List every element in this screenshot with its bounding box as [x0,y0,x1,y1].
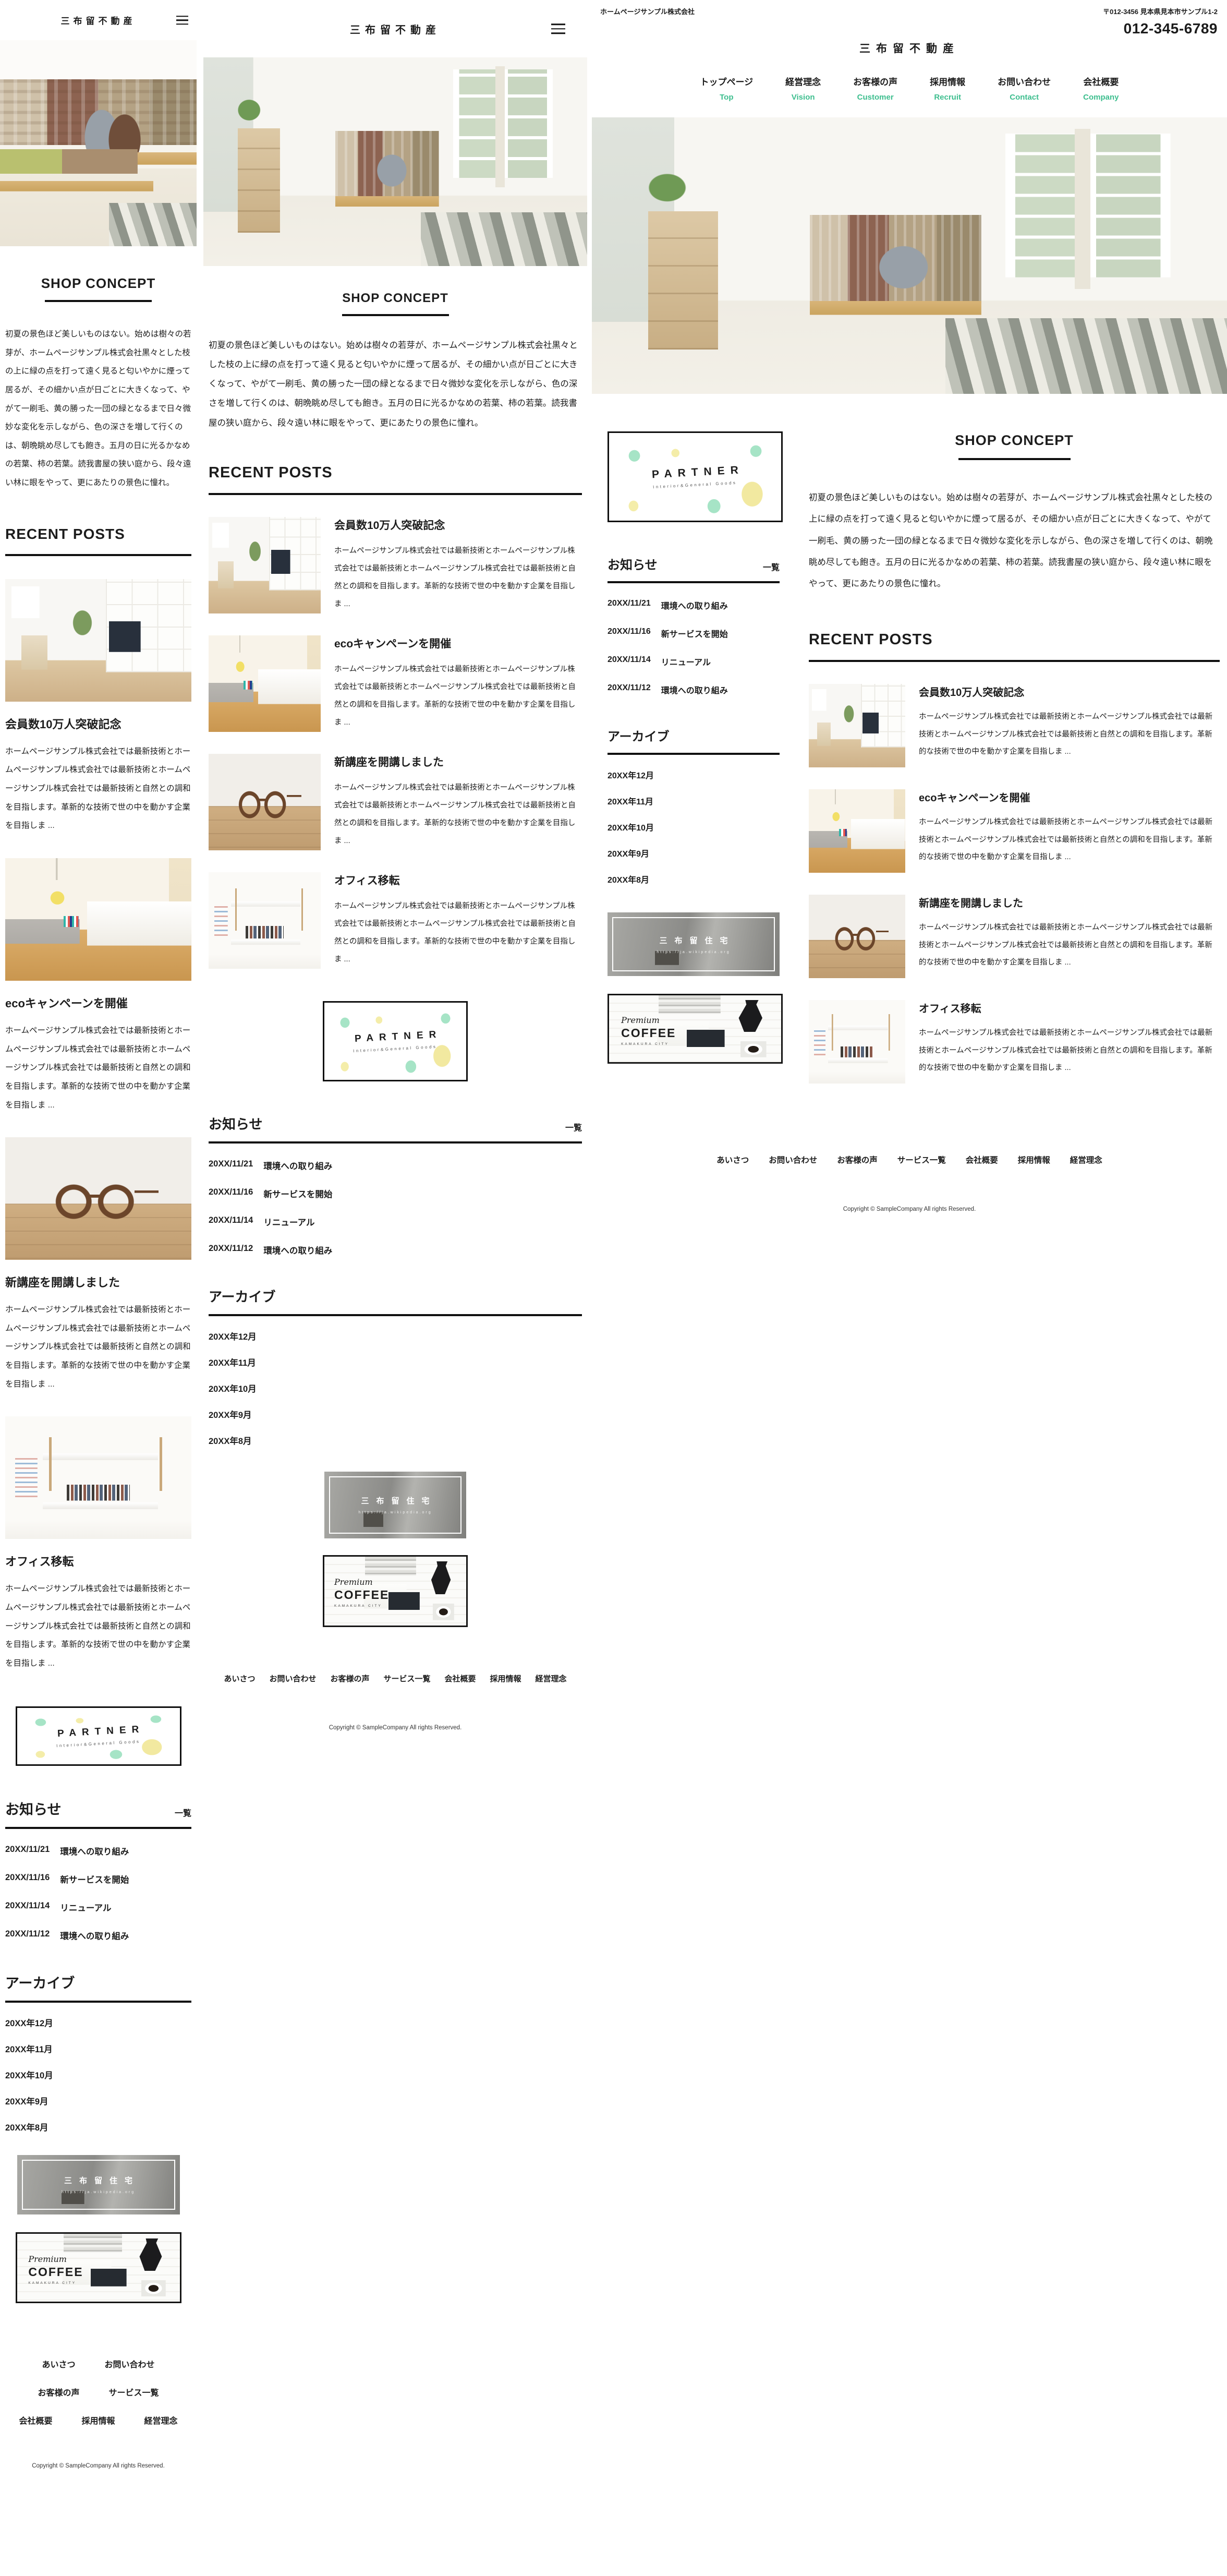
post-thumbnail[interactable] [209,754,321,850]
post-card: 新講座を開講しました ホームページサンプル株式会社では最新技術とホームページサン… [809,895,1220,978]
post-title[interactable]: 会員数10万人突破記念 [919,684,1220,699]
shop-concept-title: SHOP CONCEPT [809,432,1220,449]
archive-item[interactable]: 20XX年10月 [5,2068,191,2081]
post-thumbnail[interactable] [809,789,905,873]
footer-nav: あいさつ お問い合わせ お客様の声 サービス一覧 会社概要 採用情報 経営理念 [592,1154,1227,1165]
site-logo[interactable]: 三布留不動産 [61,14,136,27]
post-excerpt: ホームページサンプル株式会社では最新技術とホームページサンプル株式会社では最新技… [334,779,582,850]
news-list-link[interactable]: 一覧 [175,1806,191,1819]
footer-link[interactable]: お問い合わせ [105,2357,155,2370]
news-title: お知らせ [608,555,658,573]
news-item[interactable]: 20XX/11/16新サービスを開始 [5,1873,191,1885]
phone-number: 012-345-6789 [1103,20,1218,37]
news-text: 環境への取り組み [661,683,728,696]
coffee-banner-pre: Premium [621,1015,676,1025]
archive-section: アーカイブ 20XX年12月 20XX年11月 20XX年10月 20XX年9月… [5,1972,191,2133]
coffee-banner-title: COFFEE [334,1588,389,1602]
post-title[interactable]: オフィス移転 [5,1552,191,1569]
post-excerpt: ホームページサンプル株式会社では最新技術とホームページサンプル株式会社では最新技… [919,919,1220,971]
archive-title: アーカイブ [209,1286,582,1306]
post-excerpt: ホームページサンプル株式会社では最新技術とホームページサンプル株式会社では最新技… [5,1021,191,1114]
partner-banner[interactable]: PARTNER Interior&General Goods [323,1001,468,1081]
news-item[interactable]: 20XX/11/16新サービスを開始 [209,1187,582,1200]
news-date: 20XX/11/21 [608,599,651,611]
post-title[interactable]: 会員数10万人突破記念 [334,517,582,533]
jutaku-banner-url: https://ja.wikipedia.org [358,1511,432,1514]
news-date: 20XX/11/14 [5,1901,50,1913]
company-address: 〒012-3456 見本県見本市サンプル1-2 [1103,8,1218,16]
archive-item[interactable]: 20XX年8月 [5,2121,191,2133]
archive-item[interactable]: 20XX年9月 [5,2094,191,2107]
divider [5,1827,191,1829]
main-nav: トップページTop 経営理念Vision お客様の声Customer 採用情報R… [592,75,1227,117]
hero-image [203,57,587,266]
jutaku-banner-title: 三布留住宅 [652,935,735,946]
news-text: 環境への取り組み [263,1159,332,1172]
hero-image [0,40,197,246]
post-thumbnail[interactable] [809,895,905,978]
jutaku-banner[interactable]: 三布留住宅 https://ja.wikipedia.org [324,1472,466,1538]
nav-item-customer[interactable]: お客様の声Customer [853,75,897,102]
coffee-banner-subtitle: KAMAKURA CITY [334,1604,389,1608]
archive-item[interactable]: 20XX年11月 [209,1356,582,1368]
footer-link[interactable]: 採用情報 [490,1673,521,1684]
jutaku-banner-title: 三布留住宅 [57,2175,140,2186]
partner-banner[interactable]: PARTNER Interior&General Goods [608,431,783,522]
news-list-link[interactable]: 一覧 [565,1121,582,1133]
nav-item-recruit[interactable]: 採用情報Recruit [930,75,965,102]
desktop-viewport: ホームページサンプル株式会社 〒012-3456 見本県見本市サンプル1-2 0… [592,0,1227,1241]
post-card: オフィス移転 ホームページサンプル株式会社では最新技術とホームページサンプル株式… [809,1000,1220,1084]
shop-concept-title: SHOP CONCEPT [209,291,582,306]
news-section: お知らせ 一覧 20XX/11/21環境への取り組み 20XX/11/16新サー… [608,555,780,696]
archive-item[interactable]: 20XX年9月 [608,847,780,859]
jutaku-banner[interactable]: 三布留住宅 https://ja.wikipedia.org [608,912,780,976]
post-title[interactable]: ecoキャンペーンを開催 [919,789,1220,804]
news-date: 20XX/11/14 [608,655,651,668]
shop-concept-text: 初夏の景色ほど美しいものはない。始めは樹々の若芽が、ホームページサンプル株式会社… [5,325,191,492]
news-item[interactable]: 20XX/11/12環境への取り組み [5,1929,191,1942]
divider [608,581,780,583]
desktop-content: PARTNER Interior&General Goods お知らせ 一覧 2… [592,394,1227,1084]
archive-section: アーカイブ 20XX年12月 20XX年11月 20XX年10月 20XX年9月… [608,726,780,885]
post-excerpt: ホームページサンプル株式会社では最新技術とホームページサンプル株式会社では最新技… [5,1301,191,1393]
news-item[interactable]: 20XX/11/14リニューアル [5,1901,191,1913]
partner-banner-title: PARTNER [348,1029,442,1045]
coffee-banner-title: COFFEE [621,1026,676,1040]
post-title[interactable]: 新講座を開講しました [5,1273,191,1290]
news-text: リニューアル [263,1215,314,1228]
footer-link[interactable]: お問い合わせ [269,1673,316,1684]
news-text: 環境への取り組み [60,1845,129,1857]
archive-item[interactable]: 20XX年10月 [608,821,780,833]
post-excerpt: ホームページサンプル株式会社では最新技術とホームページサンプル株式会社では最新技… [919,708,1220,761]
jutaku-banner[interactable]: 三布留住宅 https://ja.wikipedia.org [17,2155,180,2214]
news-text: 新サービスを開始 [60,1873,129,1885]
post-thumbnail[interactable] [5,1137,191,1260]
footer-nav: あいさつ お問い合わせ お客様の声 サービス一覧 会社概要 採用情報 経営理念 [209,1673,582,1684]
footer-link[interactable]: お客様の声 [837,1154,878,1165]
news-item[interactable]: 20XX/11/12環境への取り組み [608,683,780,696]
copyright: Copyright © SampleCompany All rights Res… [592,1206,1227,1212]
jutaku-banner-url: https://ja.wikipedia.org [62,2190,135,2194]
news-date: 20XX/11/16 [608,627,651,640]
footer-link[interactable]: お客様の声 [38,2386,79,2398]
footer-link[interactable]: サービス一覧 [897,1154,946,1165]
archive-title: アーカイブ [5,1972,191,1992]
post-thumbnail[interactable] [5,858,191,981]
archive-item[interactable]: 20XX年11月 [608,795,780,807]
news-section: お知らせ 一覧 20XX/11/21環境への取り組み 20XX/11/16新サー… [5,1798,191,1942]
footer-link[interactable]: お問い合わせ [769,1154,817,1165]
post-title[interactable]: ecoキャンペーンを開催 [334,635,582,651]
recent-posts-title: RECENT POSTS [809,631,1220,648]
archive-item[interactable]: 20XX年12月 [209,1330,582,1342]
news-date: 20XX/11/12 [209,1244,253,1256]
archive-item[interactable]: 20XX年12月 [5,2016,191,2029]
post-thumbnail[interactable] [209,872,321,969]
archive-item[interactable]: 20XX年11月 [5,2042,191,2055]
tablet-viewport: 三布留不動産 SHOP CONCEPT 初夏の景色ほど美しいものはない。始めは樹… [203,0,587,1760]
news-list-link[interactable]: 一覧 [763,560,780,573]
news-text: 環境への取り組み [263,1244,332,1256]
footer-nav: あいさつ お問い合わせ お客様の声 サービス一覧 会社概要 採用情報 経営理念 [5,2357,191,2426]
mobile-viewport: 三布留不動産 SHOP CONCEPT 初夏の景色ほど美しいものはない。始めは樹… [0,0,197,2495]
news-item[interactable]: 20XX/11/16新サービスを開始 [608,627,780,640]
post-thumbnail[interactable] [5,1416,191,1539]
news-title: お知らせ [209,1114,262,1133]
news-item[interactable]: 20XX/11/21環境への取り組み [209,1159,582,1172]
nav-item-contact[interactable]: お問い合わせContact [998,75,1051,102]
archive-item[interactable]: 20XX年10月 [209,1382,582,1394]
coffee-banner[interactable]: Premium COFFEE KAMAKURA CITY [608,994,783,1064]
news-item[interactable]: 20XX/11/21環境への取り組み [5,1845,191,1857]
footer-link[interactable]: サービス一覧 [109,2386,159,2398]
coffee-banner[interactable]: Premium COFFEE KAMAKURA CITY [323,1555,468,1627]
post-title[interactable]: 会員数10万人突破記念 [5,715,191,732]
partner-banner[interactable]: PARTNER Interior&General Goods [16,1706,181,1766]
site-logo[interactable]: 三布留不動産 [350,21,441,37]
post-excerpt: ホームページサンプル株式会社では最新技術とホームページサンプル株式会社では最新技… [334,660,582,731]
post-excerpt: ホームページサンプル株式会社では最新技術とホームページサンプル株式会社では最新技… [334,542,582,613]
post-thumbnail[interactable] [809,684,905,767]
post-card: 新講座を開講しました ホームページサンプル株式会社では最新技術とホームページサン… [209,754,582,850]
news-section: お知らせ 一覧 20XX/11/21環境への取り組み 20XX/11/16新サー… [209,1114,582,1256]
footer-link[interactable]: 採用情報 [81,2414,115,2426]
partner-banner-subtitle: Interior&General Goods [653,480,737,489]
post-thumbnail[interactable] [809,1000,905,1084]
footer-link[interactable]: お客様の声 [330,1673,369,1684]
divider [209,1314,582,1316]
footer-link[interactable]: 経営理念 [1070,1154,1102,1165]
post-thumbnail[interactable] [209,635,321,732]
archive-title: アーカイブ [608,726,780,744]
coffee-banner-subtitle: KAMAKURA CITY [28,2281,83,2285]
archive-item[interactable]: 20XX年9月 [209,1408,582,1421]
archive-section: アーカイブ 20XX年12月 20XX年11月 20XX年10月 20XX年9月… [209,1286,582,1447]
footer-link[interactable]: 会社概要 [19,2414,52,2426]
news-text: 新サービスを開始 [661,627,728,640]
post-excerpt: ホームページサンプル株式会社では最新技術とホームページサンプル株式会社では最新技… [334,897,582,968]
news-title: お知らせ [5,1798,61,1819]
partner-banner-subtitle: Interior&General Goods [56,1739,141,1748]
post-card: ecoキャンペーンを開催 ホームページサンプル株式会社では最新技術とホームページ… [5,858,191,1114]
footer-link[interactable]: サービス一覧 [383,1673,430,1684]
post-title[interactable]: 新講座を開講しました [334,754,582,769]
responsive-preview-canvas: 三布留不動産 SHOP CONCEPT 初夏の景色ほど美しいものはない。始めは樹… [0,0,1227,2576]
news-item[interactable]: 20XX/11/14リニューアル [608,655,780,668]
divider [608,753,780,755]
footer-link[interactable]: 会社概要 [966,1154,998,1165]
nav-item-vision[interactable]: 経営理念Vision [785,75,821,102]
news-date: 20XX/11/14 [209,1215,253,1228]
coffee-banner[interactable]: Premium COFFEE KAMAKURA CITY [16,2232,181,2303]
tablet-content: SHOP CONCEPT 初夏の景色ほど美しいものはない。始めは樹々の若芽が、ホ… [203,291,587,1731]
news-text: リニューアル [60,1901,111,1913]
post-excerpt: ホームページサンプル株式会社では最新技術とホームページサンプル株式会社では最新技… [919,1025,1220,1077]
shop-concept-title: SHOP CONCEPT [5,275,191,292]
archive-item[interactable]: 20XX年8月 [608,873,780,885]
news-text: リニューアル [661,655,711,668]
footer-link[interactable]: あいさつ [224,1673,255,1684]
news-text: 環境への取り組み [60,1929,129,1942]
post-card: オフィス移転 ホームページサンプル株式会社では最新技術とホームページサンプル株式… [209,872,582,969]
sidebar: PARTNER Interior&General Goods お知らせ 一覧 2… [608,431,780,1064]
site-logo[interactable]: 三布留不動産 [592,40,1227,56]
post-card: ecoキャンペーンを開催 ホームページサンプル株式会社では最新技術とホームページ… [209,635,582,732]
news-date: 20XX/11/21 [5,1845,50,1857]
shop-concept-text: 初夏の景色ほど美しいものはない。始めは樹々の若芽が、ホームページサンプル株式会社… [209,336,582,433]
post-title[interactable]: 新講座を開講しました [919,895,1220,910]
divider [809,660,1220,662]
jutaku-banner-url: https://ja.wikipedia.org [657,950,730,954]
mobile-header: 三布留不動産 [0,0,197,40]
hamburger-menu-icon[interactable] [551,23,565,34]
footer-link[interactable]: あいさつ [42,2357,75,2370]
post-card: 会員数10万人突破記念 ホームページサンプル株式会社では最新技術とホームページサ… [5,579,191,835]
post-excerpt: ホームページサンプル株式会社では最新技術とホームページサンプル株式会社では最新技… [5,1580,191,1672]
post-card: ecoキャンペーンを開催 ホームページサンプル株式会社では最新技術とホームページ… [809,789,1220,873]
divider [958,458,1071,460]
divider [209,1141,582,1143]
news-text: 環境への取り組み [661,599,728,611]
main-content: SHOP CONCEPT 初夏の景色ほど美しいものはない。始めは樹々の若芽が、ホ… [809,431,1220,1084]
footer-link[interactable]: あいさつ [716,1154,749,1165]
archive-item[interactable]: 20XX年12月 [608,768,780,781]
coffee-banner-pre: Premium [28,2254,83,2264]
nav-item-top[interactable]: トップページTop [700,75,753,102]
post-title[interactable]: オフィス移転 [919,1000,1220,1015]
coffee-banner-pre: Premium [334,1577,389,1587]
post-title[interactable]: オフィス移転 [334,872,582,888]
partner-banner-title: PARTNER [52,1724,145,1740]
recent-posts-title: RECENT POSTS [209,464,582,482]
copyright: Copyright © SampleCompany All rights Res… [5,2463,191,2469]
recent-posts-title: RECENT POSTS [5,526,191,543]
hero-image [592,117,1227,394]
post-excerpt: ホームページサンプル株式会社では最新技術とホームページサンプル株式会社では最新技… [919,814,1220,866]
news-date: 20XX/11/16 [209,1187,253,1200]
news-item[interactable]: 20XX/11/14リニューアル [209,1215,582,1228]
post-card: オフィス移転 ホームページサンプル株式会社では最新技術とホームページサンプル株式… [5,1416,191,1672]
jutaku-banner-title: 三布留住宅 [354,1495,436,1506]
partner-banner-subtitle: Interior&General Goods [353,1044,438,1053]
divider [5,2001,191,2003]
archive-item[interactable]: 20XX年8月 [209,1434,582,1447]
partner-banner-title: PARTNER [646,464,745,482]
news-date: 20XX/11/12 [608,683,651,696]
news-text: 新サービスを開始 [263,1187,332,1200]
footer-link[interactable]: 経営理念 [536,1673,567,1684]
coffee-banner-title: COFFEE [28,2265,83,2279]
desktop-header: ホームページサンプル株式会社 〒012-3456 見本県見本市サンプル1-2 0… [592,0,1227,117]
divider [5,554,191,556]
post-thumbnail[interactable] [5,579,191,702]
company-name: ホームページサンプル株式会社 [600,6,695,16]
nav-item-company[interactable]: 会社概要Company [1083,75,1119,102]
post-card: 会員数10万人突破記念 ホームページサンプル株式会社では最新技術とホームページサ… [809,684,1220,767]
news-date: 20XX/11/21 [209,1159,253,1172]
post-card: 会員数10万人突破記念 ホームページサンプル株式会社では最新技術とホームページサ… [209,517,582,613]
divider [209,493,582,495]
mobile-content: SHOP CONCEPT 初夏の景色ほど美しいものはない。始めは樹々の若芽が、ホ… [0,275,197,2469]
coffee-banner-subtitle: KAMAKURA CITY [621,1042,676,1046]
divider [342,314,449,316]
news-date: 20XX/11/16 [5,1873,50,1885]
news-date: 20XX/11/12 [5,1929,50,1942]
post-card: 新講座を開講しました ホームページサンプル株式会社では最新技術とホームページサン… [5,1137,191,1393]
news-item[interactable]: 20XX/11/21環境への取り組み [608,599,780,611]
footer-link[interactable]: 採用情報 [1018,1154,1050,1165]
tablet-header: 三布留不動産 [203,0,587,57]
divider [45,300,152,302]
news-item[interactable]: 20XX/11/12環境への取り組み [209,1244,582,1256]
footer-link[interactable]: 経営理念 [144,2414,178,2426]
post-title[interactable]: ecoキャンペーンを開催 [5,994,191,1011]
copyright: Copyright © SampleCompany All rights Res… [209,1725,582,1731]
shop-concept-text: 初夏の景色ほど美しいものはない。始めは樹々の若芽が、ホームページサンプル株式会社… [809,487,1220,595]
footer-link[interactable]: 会社概要 [445,1673,476,1684]
post-excerpt: ホームページサンプル株式会社では最新技術とホームページサンプル株式会社では最新技… [5,742,191,835]
post-thumbnail[interactable] [209,517,321,613]
hamburger-menu-icon[interactable] [176,16,188,25]
